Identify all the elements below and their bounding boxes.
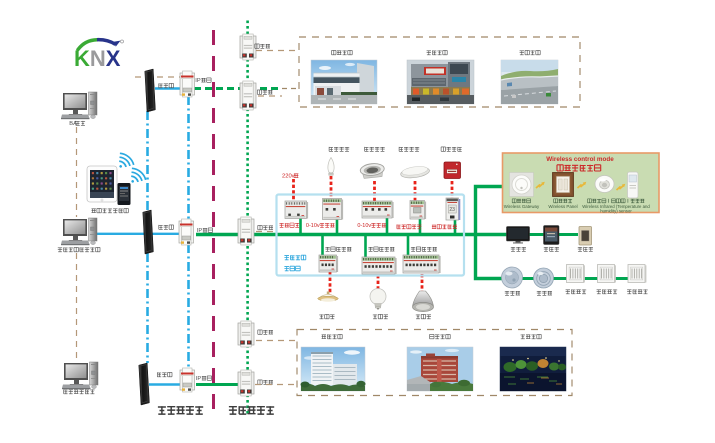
svg-text:Wireless Panel: Wireless Panel [548,204,577,209]
svg-text:IP: IP [197,228,203,234]
svg-text:humidity) sensor: humidity) sensor [600,209,632,214]
svg-text:IP: IP [196,376,202,382]
svg-text:220v: 220v [282,174,295,180]
svg-text:Wireless Gateway: Wireless Gateway [504,204,540,209]
svg-text:23: 23 [449,207,455,213]
svg-text:KNX: KNX [74,46,121,71]
svg-text:Wireless control mode: Wireless control mode [546,156,614,163]
svg-text:0-10v: 0-10v [357,223,371,229]
svg-text:0-10v: 0-10v [306,223,320,229]
svg-text:IP: IP [195,78,201,84]
